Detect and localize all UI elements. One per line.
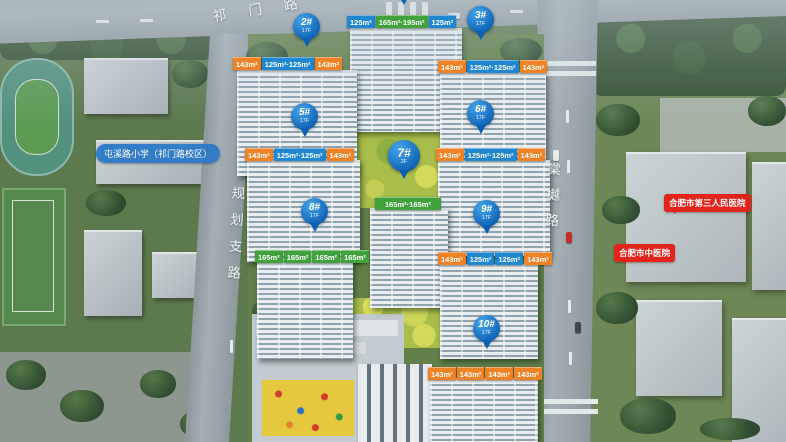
car — [566, 232, 572, 243]
pin-tail-icon — [399, 170, 409, 184]
pin-floors: 2F — [401, 160, 407, 166]
tree — [602, 196, 640, 224]
unit-area-tag: 125m² — [495, 252, 523, 265]
road-label-east: 棠樾路 — [540, 162, 563, 239]
pin-label: 5# — [299, 108, 310, 118]
lane-marking — [140, 19, 153, 22]
car — [553, 150, 559, 161]
road-label-west: 规划支路 — [221, 186, 247, 293]
unit-tags-building-2: 143m² 125m²·125m² 143m² — [233, 57, 342, 70]
tree — [620, 398, 676, 434]
unit-area-tag: 125m²·125m² — [465, 148, 517, 161]
unit-area-tag: 143m² — [315, 57, 343, 70]
unit-area-tag: 125m²·125m² — [467, 60, 519, 73]
pin-head: 2# 17F — [293, 13, 320, 40]
unit-tags-building-5: 143m² 125m²·125m² 143m² — [245, 148, 354, 161]
building-pin-3[interactable]: 3# 17F — [467, 6, 494, 45]
school-label: 屯溪路小学（祁门路校区） — [96, 144, 220, 163]
unit-area-tag: 165m²·165m² — [375, 197, 441, 210]
building-pin-2[interactable]: 2# 17F — [293, 13, 320, 52]
unit-area-tag: 125m²·125m² — [262, 57, 314, 70]
pin-label: 7# — [397, 147, 410, 159]
building-pin-8[interactable]: 8# 17F — [301, 198, 328, 237]
building-pin-6[interactable]: 6# 17F — [467, 100, 494, 139]
school-building — [84, 230, 142, 316]
hospital-label-1: 合肥市第三人民医院 — [664, 194, 751, 212]
unit-tags-building-3: 143m² 125m²·125m² 143m² — [438, 60, 547, 73]
field-lines — [12, 200, 54, 312]
pin-tail-icon — [482, 340, 492, 354]
tree — [140, 370, 176, 398]
tree — [172, 60, 208, 88]
crosswalk — [542, 56, 596, 76]
unit-area-tag: 143m² — [520, 60, 548, 73]
pin-floors: 17F — [482, 216, 491, 222]
lane-marking — [96, 20, 109, 23]
crosswalk — [544, 396, 598, 414]
lane-marking — [566, 110, 569, 123]
pin-floors: 17F — [310, 214, 319, 220]
pin-head: 7# 2F — [388, 140, 420, 172]
pin-floors: 17F — [476, 116, 485, 122]
lane-marking — [568, 300, 571, 313]
unit-area-tag: 143m² — [457, 367, 485, 380]
lane-marking — [510, 10, 523, 13]
unit-area-tag: 143m² — [327, 148, 355, 161]
pin-head: 8# 17F — [301, 198, 328, 225]
pin-label: 8# — [309, 203, 320, 213]
tree — [6, 360, 46, 390]
unit-area-tag: 165m² — [255, 250, 283, 263]
hospital-label-2: 合肥市中医院 — [614, 244, 675, 262]
running-track — [0, 58, 74, 176]
pin-floors: 17F — [302, 29, 311, 35]
unit-tags-building-6: 143m² 125m²·125m² 143m² — [436, 148, 545, 161]
pin-tail-icon — [300, 128, 310, 142]
pin-head: 5# 17F — [291, 103, 318, 130]
unit-area-tag: 143m² — [245, 148, 273, 161]
car — [575, 322, 581, 333]
site-plan-map: 祁门路 规划支路 棠樾路 125m² 165m²·195m² 125m² 143… — [0, 0, 786, 442]
unit-area-tag: 165m²·195m² — [376, 15, 428, 28]
lane-marking — [569, 352, 572, 365]
pin-label: 2# — [301, 18, 312, 28]
unit-area-tag: 143m² — [514, 367, 542, 380]
unit-area-tag: 165m² — [312, 250, 340, 263]
pin-head: 6# 17F — [467, 100, 494, 127]
school-building — [84, 58, 168, 114]
tree — [596, 292, 638, 324]
unit-area-tag: 143m² — [518, 148, 546, 161]
pin-floors: 17F — [482, 331, 491, 337]
unit-area-tag: 125m² — [347, 15, 375, 28]
lane-marking — [567, 160, 570, 173]
tree — [60, 390, 104, 422]
unit-area-tag: 143m² — [485, 367, 513, 380]
hospital-building — [626, 152, 746, 282]
building-10 — [430, 378, 538, 442]
pin-floors: 17F — [476, 22, 485, 28]
low-rise-row — [358, 364, 432, 442]
unit-tags-building-10: 143m² 143m² 143m² 143m² — [428, 367, 542, 380]
pin-tail-icon — [310, 223, 320, 237]
pin-label: 9# — [481, 205, 492, 215]
unit-tags-building-8: 165m² 165m² 165m² 165m² — [255, 250, 369, 263]
sports-field — [2, 188, 66, 326]
hospital-building — [636, 300, 722, 396]
pin-head: 10# 17F — [473, 315, 500, 342]
building-pin-5[interactable]: 5# 17F — [291, 103, 318, 142]
unit-area-tag: 165m² — [341, 250, 369, 263]
unit-area-tag: 143m² — [438, 60, 466, 73]
unit-area-tag: 125m²·125m² — [274, 148, 326, 161]
building-pin-partial[interactable] — [399, 0, 409, 10]
tree — [596, 104, 640, 136]
unit-area-tag: 165m² — [284, 250, 312, 263]
lane-marking — [230, 340, 233, 353]
hospital-building — [752, 162, 786, 290]
tree — [86, 190, 126, 216]
track-infield — [15, 79, 59, 155]
unit-area-tag: 143m² — [233, 57, 261, 70]
building-7 — [370, 208, 448, 308]
unit-area-tag: 143m² — [438, 252, 466, 265]
kindergarten-playground — [262, 380, 354, 436]
pin-tail-icon — [476, 31, 486, 45]
pin-head: 9# 17F — [473, 200, 500, 227]
pin-label: 6# — [475, 105, 486, 115]
pin-floors: 17F — [300, 119, 309, 125]
building-pin-9[interactable]: 9# 17F — [473, 200, 500, 239]
unit-tags-building-9: 143m² 125m² 125m² 143m² — [438, 252, 552, 265]
tree — [700, 418, 760, 440]
pin-label: 10# — [478, 320, 495, 330]
unit-area-tag: 125m² — [467, 252, 495, 265]
unit-area-tag: 143m² — [436, 148, 464, 161]
unit-area-tag: 143m² — [524, 252, 552, 265]
pin-tail-icon — [482, 225, 492, 239]
unit-tags-building-1: 125m² 165m²·195m² 125m² — [347, 15, 456, 28]
pin-label: 3# — [475, 11, 486, 21]
building-8 — [257, 262, 353, 359]
building-pin-7[interactable]: 7# 2F — [388, 140, 420, 184]
unit-area-tag: 125m² — [429, 15, 457, 28]
pin-head: 3# 17F — [467, 6, 494, 33]
tree — [748, 96, 786, 126]
pin-tail-icon — [302, 38, 312, 52]
building-pin-10[interactable]: 10# 17F — [473, 315, 500, 354]
unit-tags-building-7: 165m²·165m² — [375, 197, 441, 210]
pin-tail-icon — [476, 125, 486, 139]
unit-area-tag: 143m² — [428, 367, 456, 380]
